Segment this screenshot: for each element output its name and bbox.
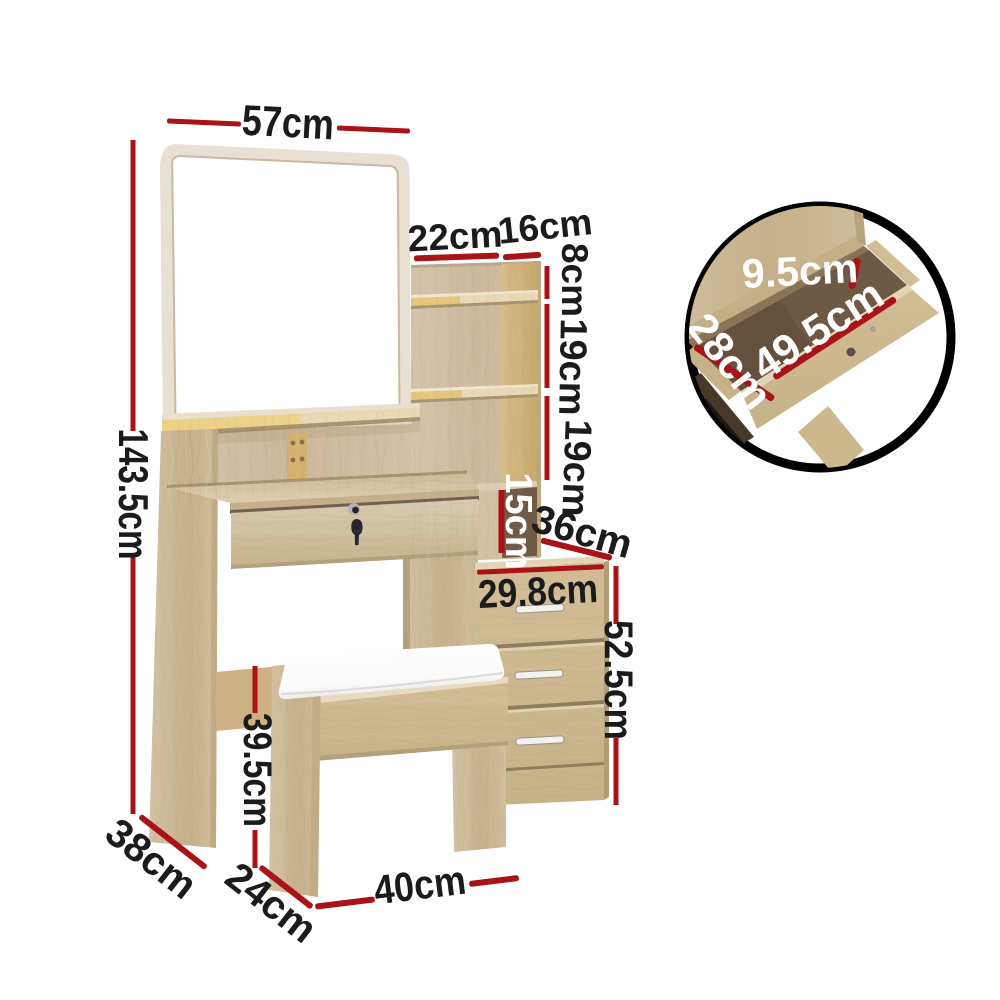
svg-text:39.5cm: 39.5cm	[235, 713, 279, 827]
svg-text:29.8cm: 29.8cm	[477, 567, 599, 617]
svg-text:57cm: 57cm	[241, 97, 335, 150]
svg-text:19cm: 19cm	[550, 318, 594, 416]
svg-text:8cm: 8cm	[554, 243, 595, 317]
svg-text:22cm: 22cm	[407, 214, 504, 260]
svg-text:143.5cm: 143.5cm	[110, 429, 157, 560]
svg-text:52.5cm: 52.5cm	[596, 620, 640, 740]
